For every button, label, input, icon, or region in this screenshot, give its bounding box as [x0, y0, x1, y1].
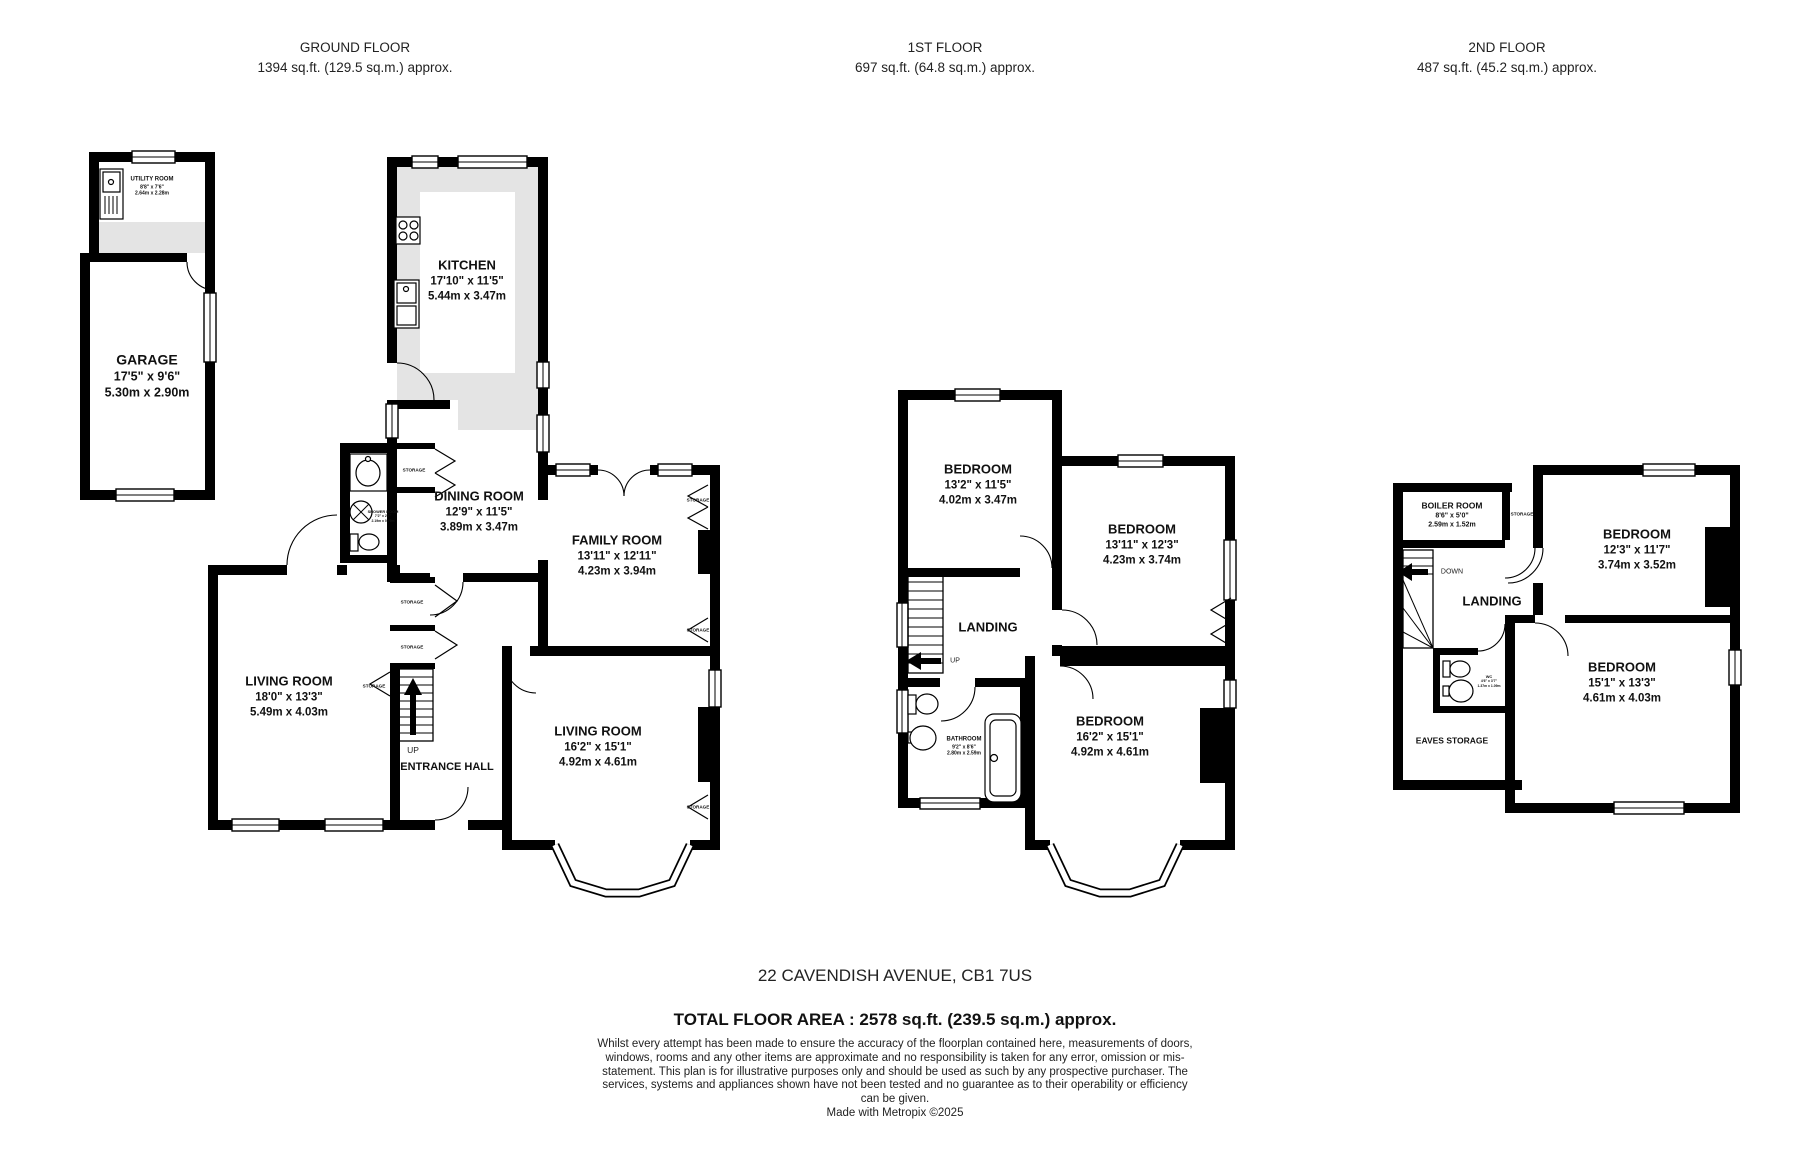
room-dims-imperial: 4'6" x 3'7"	[1478, 679, 1501, 683]
room-dims-metric: 5.44m x 3.47m	[428, 289, 506, 304]
room-label-bathroom: BATHROOM 9'2" x 8'6" 2.80m x 2.59m	[947, 737, 982, 758]
ground-floor-header: GROUND FLOOR 1394 sq.ft. (129.5 sq.m.) a…	[257, 38, 452, 77]
bathtub-icon	[985, 714, 1021, 802]
room-dims-metric: 5.49m x 4.03m	[245, 705, 332, 720]
room-name: LANDING	[1462, 594, 1521, 611]
room-dims-metric: 2.80m x 2.59m	[947, 751, 982, 758]
room-name: LIVING ROOM	[554, 724, 641, 741]
first-floor-area: 697 sq.ft. (64.8 sq.m.) approx.	[855, 58, 1035, 78]
first-floor-title: 1ST FLOOR	[855, 38, 1035, 58]
room-dims-metric: 4.61m x 4.03m	[1583, 691, 1661, 706]
toilet-icon	[908, 694, 938, 714]
room-name: FAMILY ROOM	[572, 533, 662, 550]
room-dims-metric: 4.23m x 3.94m	[572, 564, 662, 579]
room-name: BEDROOM	[1583, 660, 1661, 677]
up-label: UP	[407, 745, 419, 755]
storage-label: STORAGE	[1511, 512, 1534, 517]
room-label-landing-second: LANDING	[1462, 594, 1521, 611]
room-label-shower-room: SHOWER ROOM 7'2" x 2'7" 2.19m x 0.79m	[368, 509, 399, 523]
room-name: UTILITY ROOM	[131, 177, 174, 185]
room-label-wc: WC 4'6" x 3'7" 1.37m x 1.09m	[1478, 674, 1501, 688]
room-dims-metric: 2.59m x 1.52m	[1422, 521, 1483, 530]
down-label: DOWN	[1441, 569, 1463, 576]
utility-sink-icon	[100, 169, 123, 219]
storage-label: STORAGE	[403, 468, 426, 473]
ground-bay-window	[555, 845, 690, 893]
room-label-family: FAMILY ROOM 13'11" x 12'11" 4.23m x 3.94…	[572, 533, 662, 580]
room-dims-metric: 2.19m x 0.79m	[368, 519, 399, 523]
room-dims-metric: 4.92m x 4.61m	[1071, 745, 1149, 760]
room-name: LANDING	[958, 620, 1017, 637]
room-label-living-left: LIVING ROOM 18'0" x 13'3" 5.49m x 4.03m	[245, 674, 332, 721]
second-floor-header: 2ND FLOOR 487 sq.ft. (45.2 sq.m.) approx…	[1417, 38, 1597, 77]
room-dims-metric: 4.02m x 3.47m	[939, 493, 1017, 508]
ground-floor-title: GROUND FLOOR	[257, 38, 452, 58]
room-dims-metric: 4.23m x 3.74m	[1103, 553, 1181, 568]
up-arrow-icon	[404, 678, 422, 735]
room-dims-imperial: 12'9" x 11'5"	[434, 506, 524, 521]
ground-floor-area: 1394 sq.ft. (129.5 sq.m.) approx.	[257, 58, 452, 78]
room-label-boiler-room: BOILER ROOM 8'6" x 5'0" 2.59m x 1.52m	[1422, 500, 1483, 529]
room-label-landing-first: LANDING	[958, 620, 1017, 637]
room-label-bedroom-1: BEDROOM 13'2" x 11'5" 4.02m x 3.47m	[939, 462, 1017, 509]
room-label-utility: UTILITY ROOM 8'8" x 7'6" 2.64m x 2.28m	[131, 177, 174, 198]
room-name: DINING ROOM	[434, 489, 524, 506]
room-label-entrance-hall: ENTRANCE HALL	[400, 760, 494, 774]
room-label-eaves-storage: EAVES STORAGE	[1416, 735, 1488, 746]
room-label-bedroom-5: BEDROOM 15'1" x 13'3" 4.61m x 4.03m	[1583, 660, 1661, 707]
room-dims-imperial: 8'6" x 5'0"	[1422, 511, 1483, 520]
room-label-garage: GARAGE 17'5" x 9'6" 5.30m x 2.90m	[105, 351, 190, 402]
room-name: BOILER ROOM	[1422, 500, 1483, 511]
room-label-kitchen: KITCHEN 17'10" x 11'5" 5.44m x 3.47m	[428, 258, 506, 305]
room-name: GARAGE	[105, 351, 190, 369]
room-dims-imperial: 15'1" x 13'3"	[1583, 677, 1661, 692]
first-bay-window	[1050, 845, 1180, 893]
room-dims-imperial: 12'3" x 11'7"	[1598, 544, 1676, 559]
room-dims-imperial: 13'11" x 12'3"	[1103, 539, 1181, 554]
room-dims-metric: 5.30m x 2.90m	[105, 385, 190, 401]
first-floor-header: 1ST FLOOR 697 sq.ft. (64.8 sq.m.) approx…	[855, 38, 1035, 77]
storage-label: STORAGE	[363, 684, 386, 689]
kitchen-sink-icon	[394, 280, 419, 328]
room-dims-imperial: 13'11" x 12'11"	[572, 550, 662, 565]
floorplan-page: GROUND FLOOR 1394 sq.ft. (129.5 sq.m.) a…	[0, 0, 1795, 1156]
total-floor-area: TOTAL FLOOR AREA : 2578 sq.ft. (239.5 sq…	[674, 1010, 1117, 1030]
storage-label: STORAGE	[401, 645, 424, 650]
room-name: BEDROOM	[1598, 527, 1676, 544]
room-label-dining: DINING ROOM 12'9" x 11'5" 3.89m x 3.47m	[434, 489, 524, 536]
ground-floor-plan	[80, 151, 721, 893]
second-stairs	[1398, 550, 1433, 648]
room-dims-imperial: 16'2" x 15'1"	[554, 741, 641, 756]
room-dims-imperial: 16'2" x 15'1"	[1071, 731, 1149, 746]
basin-icon	[1443, 680, 1473, 702]
room-name: BEDROOM	[1103, 522, 1181, 539]
storage-label: STORAGE	[687, 498, 710, 503]
room-dims-metric: 2.64m x 2.28m	[131, 191, 174, 198]
up-arrow-icon	[906, 652, 941, 670]
room-name: EAVES STORAGE	[1416, 735, 1488, 746]
first-stairs	[906, 573, 943, 673]
room-name: LIVING ROOM	[245, 674, 332, 691]
up-label: UP	[950, 658, 960, 665]
basin-icon	[908, 726, 936, 750]
room-name: BEDROOM	[1071, 714, 1149, 731]
second-floor-title: 2ND FLOOR	[1417, 38, 1597, 58]
room-label-bedroom-4: BEDROOM 12'3" x 11'7" 3.74m x 3.52m	[1598, 527, 1676, 574]
room-dims-imperial: 13'2" x 11'5"	[939, 479, 1017, 494]
second-windows	[1614, 464, 1741, 814]
room-dims-imperial: 18'0" x 13'3"	[245, 691, 332, 706]
shower-room-fixtures	[350, 454, 387, 551]
room-dims-imperial: 17'5" x 9'6"	[105, 369, 190, 385]
room-name: BEDROOM	[939, 462, 1017, 479]
room-label-living-right: LIVING ROOM 16'2" x 15'1" 4.92m x 4.61m	[554, 724, 641, 771]
second-fixtures	[1443, 661, 1473, 702]
room-dims-metric: 4.92m x 4.61m	[554, 755, 641, 770]
room-name: ENTRANCE HALL	[400, 760, 494, 774]
property-address: 22 CAVENDISH AVENUE, CB1 7US	[758, 966, 1032, 986]
room-name: KITCHEN	[428, 258, 506, 275]
storage-label: STORAGE	[687, 628, 710, 633]
room-dims-metric: 3.74m x 3.52m	[1598, 558, 1676, 573]
disclaimer-text: Whilst every attempt has been made to en…	[595, 1038, 1195, 1107]
room-dims-imperial: 17'10" x 11'5"	[428, 275, 506, 290]
toilet-icon	[1443, 661, 1470, 677]
first-walls	[898, 390, 1235, 850]
hob-icon	[396, 217, 420, 244]
storage-label: STORAGE	[687, 805, 710, 810]
room-label-bedroom-3: BEDROOM 16'2" x 15'1" 4.92m x 4.61m	[1071, 714, 1149, 761]
room-dims-metric: 3.89m x 3.47m	[434, 520, 524, 535]
room-label-bedroom-2: BEDROOM 13'11" x 12'3" 4.23m x 3.74m	[1103, 522, 1181, 569]
room-name: BATHROOM	[947, 737, 982, 745]
second-floor-area: 487 sq.ft. (45.2 sq.m.) approx.	[1417, 58, 1597, 78]
storage-label: STORAGE	[401, 600, 424, 605]
room-dims-metric: 1.37m x 1.09m	[1478, 684, 1501, 688]
metropix-credit: Made with Metropix ©2025	[827, 1107, 964, 1119]
